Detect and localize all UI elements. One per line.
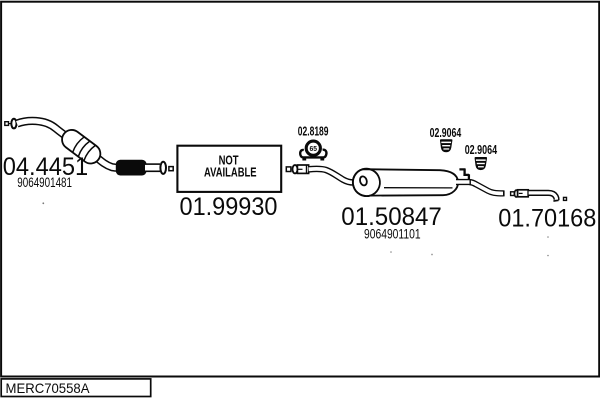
svg-text:65: 65 [310, 144, 318, 153]
svg-text:02.9064: 02.9064 [465, 142, 498, 157]
svg-text:01.99930: 01.99930 [180, 193, 278, 221]
svg-text:01.70168: 01.70168 [498, 205, 596, 233]
svg-text:02.8189: 02.8189 [298, 123, 329, 138]
svg-text:9064901481: 9064901481 [17, 174, 72, 190]
svg-text:9064901101: 9064901101 [364, 225, 421, 241]
svg-text:AVAILABLE: AVAILABLE [204, 165, 257, 180]
svg-text:02.9064: 02.9064 [430, 125, 462, 140]
svg-text:MERC70558A: MERC70558A [6, 380, 91, 396]
